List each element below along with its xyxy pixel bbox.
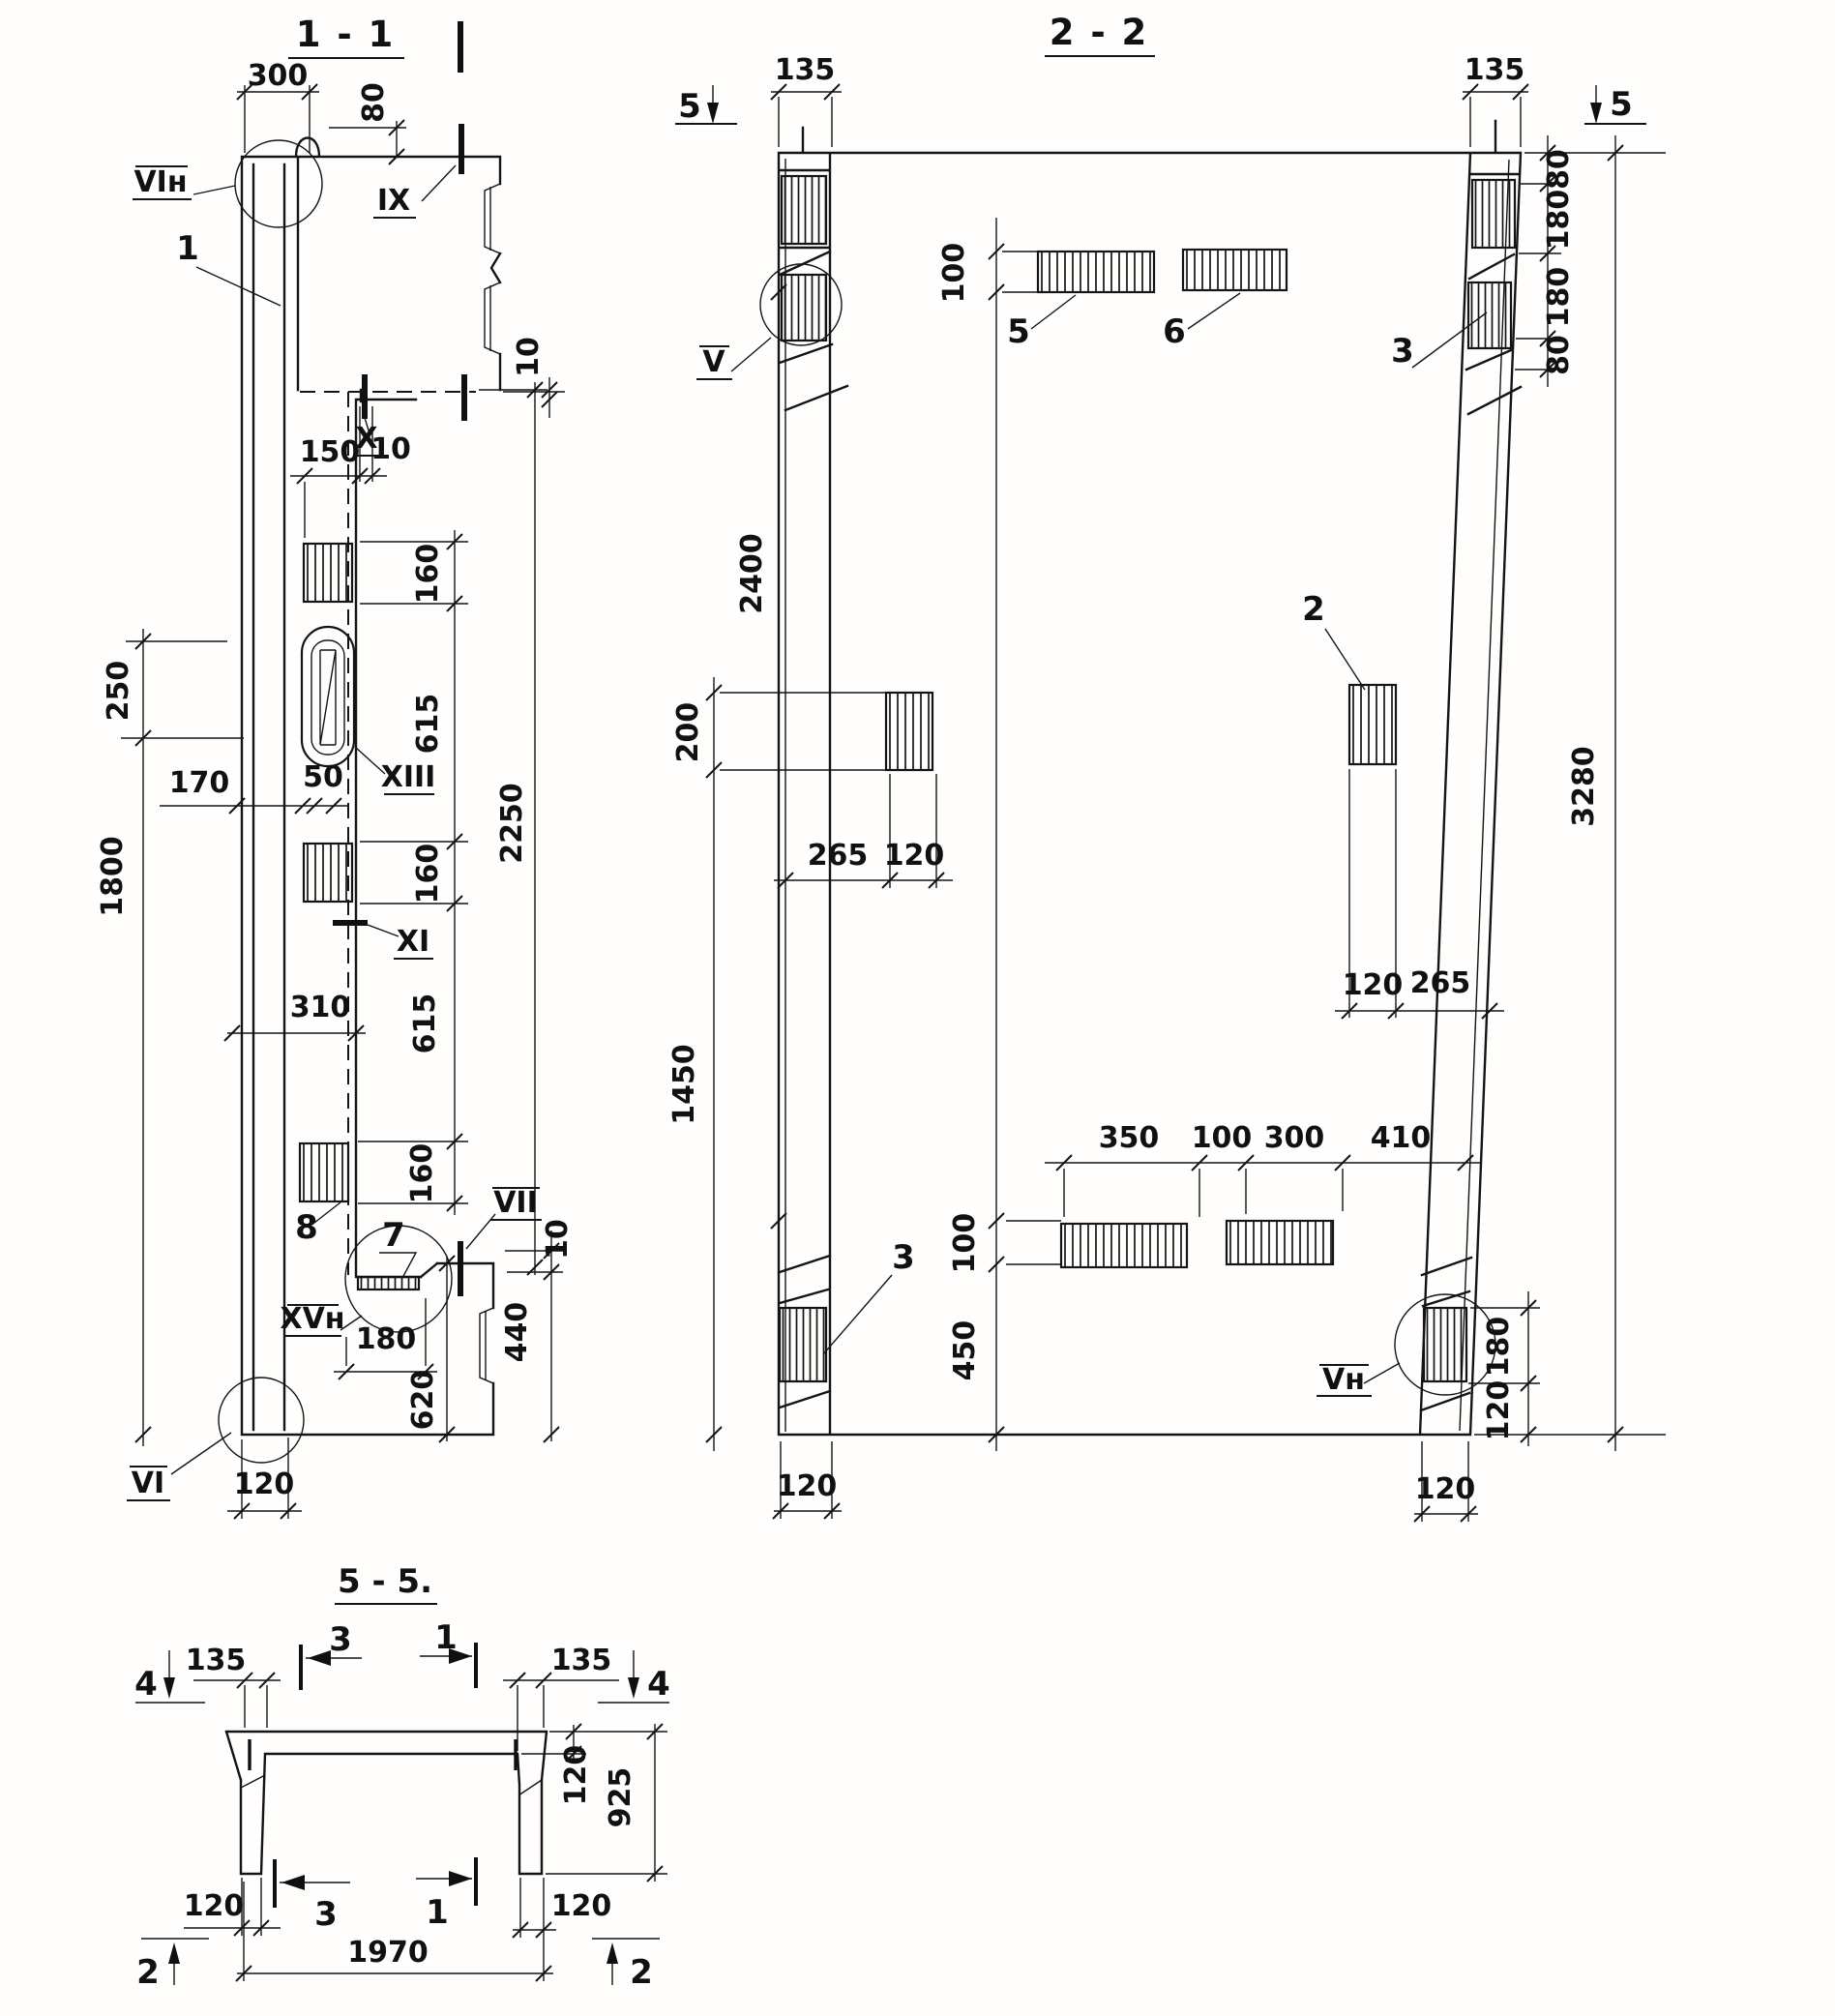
- arrow-up-icon: [607, 1942, 618, 1964]
- dim-450: 450: [948, 1320, 982, 1381]
- dim-3280: 3280: [1567, 746, 1601, 827]
- cut-marker-5-right: 5: [1610, 85, 1633, 124]
- lifting-slot-detail: [320, 650, 336, 745]
- hatch-lines: [785, 275, 826, 341]
- dim-615-a: 615: [411, 694, 445, 755]
- hatch-lines: [1042, 252, 1150, 292]
- label-vi-top: VIн: [133, 165, 187, 199]
- hatch-lines: [1476, 180, 1510, 248]
- dim-200: 200: [671, 702, 705, 763]
- hatch-lines: [784, 1308, 824, 1381]
- dim-120-key-left: 120: [884, 839, 945, 873]
- hatch-lines: [1065, 1224, 1181, 1267]
- hatch-lines: [304, 1143, 342, 1201]
- arrow-up-icon: [168, 1942, 180, 1964]
- rib-block: [1468, 282, 1511, 348]
- hatch-lines: [1428, 1308, 1462, 1381]
- key-block: [886, 693, 932, 770]
- label-xiii: XIII: [381, 760, 436, 794]
- dim-120-c: 120: [1482, 1380, 1516, 1441]
- dim-80: 80: [357, 82, 391, 123]
- dim-120-key-right: 120: [1343, 968, 1404, 1002]
- dim-120-foot-right: 120: [551, 1889, 612, 1923]
- label-vn: Vн: [1322, 1363, 1365, 1397]
- dim-160-a: 160: [411, 544, 445, 605]
- dim-120: 120: [234, 1468, 295, 1501]
- dim-2400: 2400: [735, 533, 769, 614]
- hatch-lines: [890, 693, 929, 770]
- label-v: V: [702, 345, 725, 379]
- section-5-5-title: 5 - 5.: [338, 1562, 432, 1601]
- dim-300: 300: [248, 59, 309, 93]
- rebar-block: [304, 844, 352, 902]
- label-ix: IX: [377, 184, 410, 218]
- cut-marker-1-top: 1: [434, 1618, 458, 1657]
- dim-440: 440: [500, 1302, 534, 1363]
- dim-180-b: 180: [1542, 267, 1576, 328]
- dim-1970: 1970: [347, 1936, 429, 1970]
- cut-marker-4-right: 4: [647, 1665, 670, 1704]
- section-5-5-view: 5 - 5. 135 135 120 925 120 120 1970 4 4 …: [134, 1562, 670, 1992]
- hatch-lines: [785, 176, 826, 244]
- pos-label-1: 1: [176, 229, 199, 268]
- detail-circle-vn: [1395, 1294, 1495, 1395]
- detail-circle-vi-bottom: [219, 1378, 304, 1463]
- dim-265-right: 265: [1410, 966, 1471, 1000]
- pos-label-8: 8: [295, 1208, 318, 1247]
- rebar-block: [300, 1143, 348, 1201]
- rebar-block: [304, 544, 352, 602]
- dim-135-right: 135: [1465, 53, 1525, 87]
- dim-925: 925: [604, 1767, 637, 1828]
- panel-outline: [242, 138, 500, 1436]
- dim-410: 410: [1371, 1121, 1432, 1155]
- cut-bars: [275, 1643, 476, 1908]
- dim-100-top: 100: [937, 243, 971, 304]
- dim-170: 170: [169, 766, 230, 800]
- label-x: X: [355, 422, 377, 456]
- cut-marker-arrows: [713, 85, 1596, 118]
- dim-135-right: 135: [551, 1644, 612, 1677]
- dim-300-bot: 300: [1264, 1121, 1325, 1155]
- cut-marker-1-bottom: 1: [426, 1893, 449, 1932]
- cut-marker-3-top: 3: [329, 1620, 352, 1659]
- rebar-bar: [1227, 1221, 1333, 1264]
- chamfer-lines: [241, 1775, 542, 1795]
- arrow-left-icon: [308, 1650, 331, 1666]
- section-1-1-view: 1 - 1 300 80 10 150 10: [96, 14, 575, 1519]
- hatch-lines: [308, 844, 346, 902]
- key-block-2: [1349, 685, 1396, 764]
- rib-block: [1424, 1308, 1466, 1381]
- drawing-sheet: 1 - 1 300 80 10 150 10: [0, 0, 1835, 2016]
- cut-marker-4-left: 4: [134, 1665, 158, 1704]
- hatch-lines: [308, 544, 346, 602]
- label-vii: VII: [493, 1186, 538, 1220]
- label-xi: XI: [397, 925, 429, 959]
- dim-135-left: 135: [186, 1644, 247, 1677]
- pos-label-3-left: 3: [892, 1238, 915, 1277]
- cut-marker-2-right: 2: [630, 1953, 653, 1992]
- dim-80-b: 80: [1542, 335, 1576, 375]
- dim-265-left: 265: [808, 839, 869, 873]
- dim-150: 150: [300, 435, 361, 469]
- cut-marker-5-left: 5: [678, 87, 701, 126]
- panel-sections-drawing: 1 - 1 300 80 10 150 10: [0, 0, 1835, 2016]
- dim-250: 250: [102, 661, 135, 722]
- detail-circle-vi-top: [235, 140, 322, 227]
- hatch-lines: [1187, 250, 1280, 290]
- dim-180-a: 180: [1542, 190, 1576, 251]
- hatch-lines: [1353, 685, 1392, 764]
- pos-label-6: 6: [1163, 312, 1186, 351]
- section-2-2-view: 2 - 2: [667, 12, 1666, 1522]
- section-2-2-title: 2 - 2: [1050, 12, 1149, 53]
- arrow-down-icon: [628, 1677, 639, 1699]
- hatch-lines: [1230, 1221, 1331, 1264]
- label-vi-bottom: VI: [132, 1467, 164, 1500]
- hatch-lines: [1472, 282, 1506, 348]
- rebar-bar-6: [1183, 250, 1287, 290]
- dim-120-foot-left: 120: [777, 1469, 838, 1503]
- dim-120-deck: 120: [559, 1745, 593, 1806]
- dim-160-c: 160: [405, 1143, 439, 1204]
- dim-180: 180: [356, 1322, 417, 1356]
- arrow-down-icon: [1590, 103, 1602, 124]
- label-underlines: [675, 124, 1646, 1396]
- dim-50: 50: [303, 760, 343, 794]
- dim-100-mid: 100: [1192, 1121, 1253, 1155]
- dim-120-foot-left: 120: [184, 1889, 245, 1923]
- pos-label-5: 5: [1007, 312, 1030, 351]
- dimension-lines: [714, 92, 1666, 1522]
- dim-80-a: 80: [1542, 149, 1576, 190]
- dim-10-top: 10: [512, 337, 546, 377]
- cut-marker-3-bottom: 3: [314, 1895, 338, 1934]
- dim-135-left: 135: [775, 53, 836, 87]
- dim-1450: 1450: [667, 1044, 701, 1125]
- arrow-left-icon: [281, 1875, 305, 1890]
- dim-310: 310: [290, 991, 351, 1024]
- dim-120-foot-right: 120: [1415, 1472, 1476, 1506]
- dim-620: 620: [406, 1370, 440, 1431]
- dim-2250: 2250: [495, 783, 529, 864]
- dim-180-c: 180: [1482, 1317, 1516, 1378]
- pos-label-7: 7: [382, 1216, 405, 1255]
- dim-160-b: 160: [411, 844, 445, 904]
- dim-10-bot: 10: [541, 1219, 575, 1260]
- dim-100-bottom: 100: [948, 1213, 982, 1274]
- arrow-down-icon: [707, 103, 719, 124]
- pos-label-3-right: 3: [1391, 332, 1414, 371]
- hatch-lines: [362, 1278, 416, 1289]
- channel-outline: [226, 1732, 547, 1874]
- dimension-ticks: [234, 1673, 663, 1981]
- arrow-down-icon: [163, 1677, 175, 1699]
- dim-615-b: 615: [408, 993, 442, 1054]
- dim-1800: 1800: [96, 836, 130, 917]
- cut-marker-2-left: 2: [136, 1953, 160, 1992]
- arrow-right-icon: [449, 1871, 472, 1886]
- label-underlines: [127, 166, 542, 1500]
- dim-350: 350: [1099, 1121, 1160, 1155]
- section-1-1-title: 1 - 1: [296, 14, 396, 55]
- label-xv: XVн: [280, 1302, 344, 1336]
- pos-label-2: 2: [1302, 590, 1325, 629]
